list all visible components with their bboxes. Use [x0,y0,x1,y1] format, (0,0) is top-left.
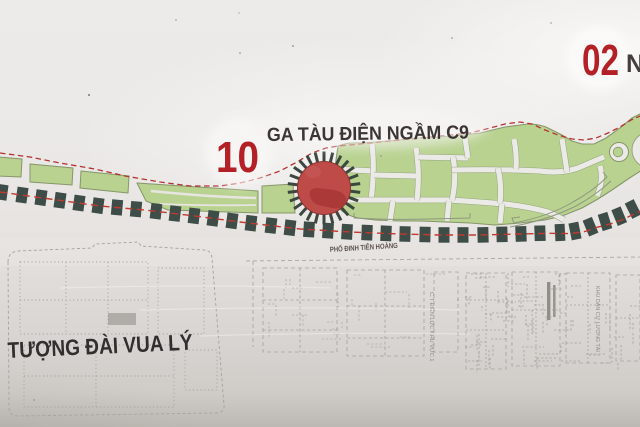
svg-text:N: N [626,50,640,78]
svg-text:02: 02 [582,36,619,85]
svg-text:TƯỢNG ĐÀI VUA LÝ: TƯỢNG ĐÀI VUA LÝ [7,330,193,363]
svg-text:C.T ĐIỆN LỰC KHU VỰC 1: C.T ĐIỆN LỰC KHU VỰC 1 [428,292,436,361]
svg-text:GA TÀU ĐIỆN NGẦM C9: GA TÀU ĐIỆN NGẦM C9 [267,122,469,146]
svg-text:10: 10 [216,133,259,182]
